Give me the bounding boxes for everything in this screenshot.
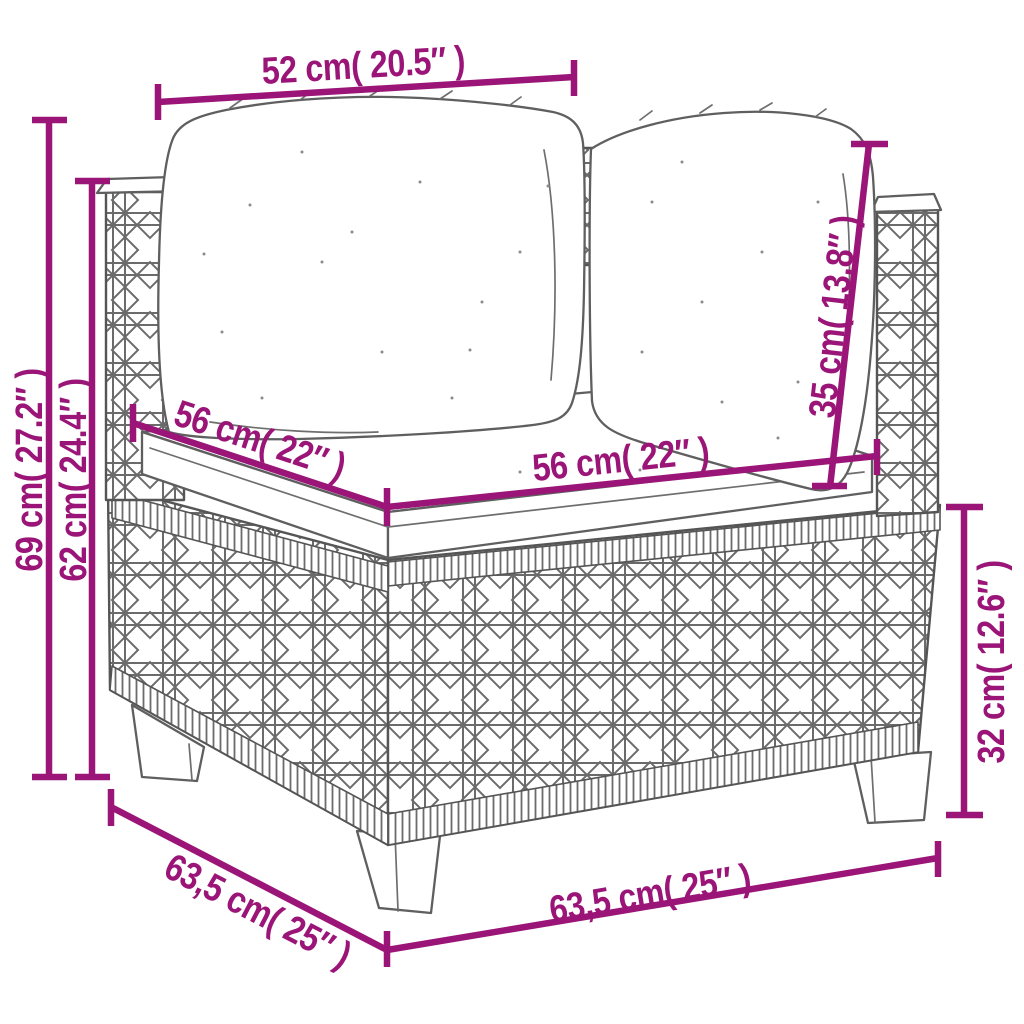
dim-bottom-depth-label: 63,5 cm( 25″ ) [158, 846, 358, 977]
right-arm-post [877, 207, 938, 516]
dim-bottom-width: 63,5 cm( 25″ ) [387, 841, 938, 950]
dim-base-height-label: 32 cm( 12.6″ ) [971, 560, 1013, 763]
left-back-pillow [158, 97, 584, 439]
corner-sofa-drawing [97, 88, 941, 913]
right-arm-cap [871, 194, 941, 212]
front-right-leg [853, 752, 931, 823]
dim-total-height-label: 69 cm( 27.2″ ) [9, 368, 51, 571]
dimension-diagram: 52 cm( 20.5″ ) 69 cm( 27.2″ ) 62 cm( 24.… [0, 0, 1024, 1024]
dim-bottom-width-label: 63,5 cm( 25″ ) [546, 856, 753, 931]
dim-arm-height: 62 cm( 24.4″ ) [53, 181, 110, 777]
dim-base-height: 32 cm( 12.6″ ) [946, 507, 1013, 815]
dim-arm-height-label: 62 cm( 24.4″ ) [53, 378, 95, 581]
